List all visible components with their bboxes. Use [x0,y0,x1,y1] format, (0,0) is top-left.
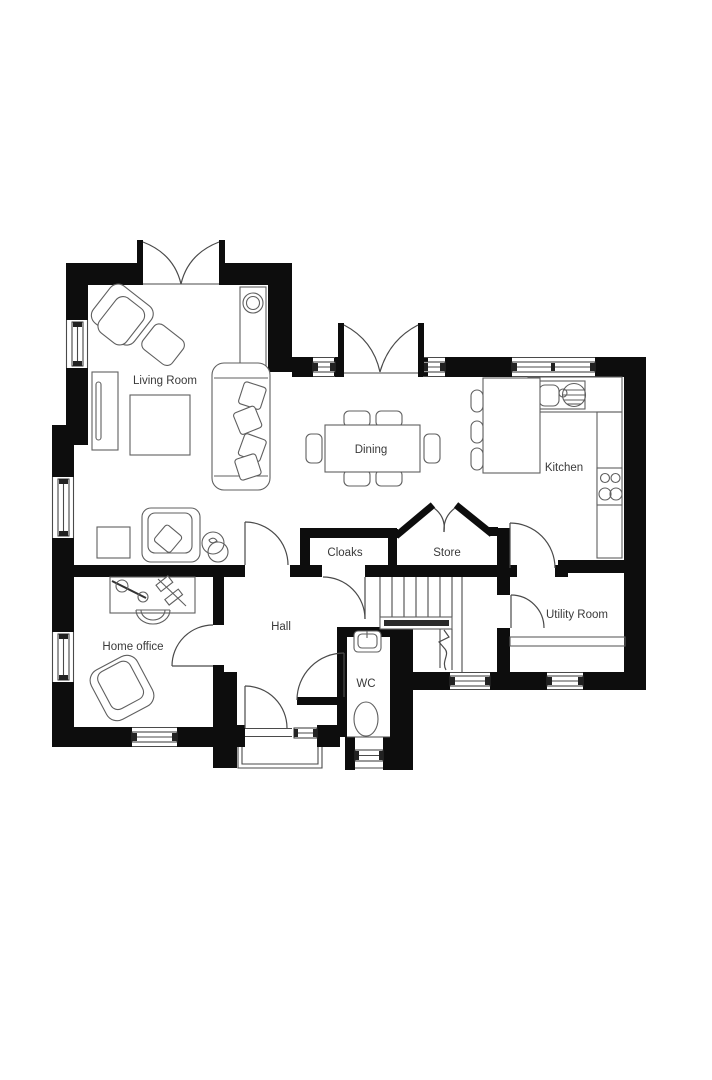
window-icon [67,320,88,368]
double-doors-icon [396,505,492,536]
hob-icon [597,468,622,505]
armchair-icon [142,508,200,562]
tv-unit-icon [92,372,118,450]
window-icon [53,477,74,538]
window-icon [53,632,74,682]
home-office-label: Home office [102,641,163,653]
store-label: Store [433,547,461,559]
coffee-table-icon [130,395,190,455]
hall-label: Hall [271,621,291,633]
front-door-icon [245,686,292,737]
window-icon [132,728,177,747]
armchair-icon [86,651,158,725]
basin-icon [354,631,381,652]
dining-label: Dining [355,444,388,456]
plant-table-icon [202,532,228,562]
door-icon [323,577,365,619]
sofa-icon [212,363,270,490]
door-icon [511,595,544,628]
utility-counter-icon [510,637,625,646]
window-icon [294,728,317,738]
wc-label: WC [356,678,375,690]
floor-plan-drawing: Living Room Dining Kitchen Cloaks Store … [0,0,712,1080]
window-icon [450,673,490,690]
desk-icon [110,576,195,613]
door-icon [172,625,213,666]
toilet-icon [354,702,378,736]
porch-icon [238,747,322,768]
footstool-icon [139,321,187,368]
living-room-label: Living Room [133,375,197,387]
cloaks-label: Cloaks [327,547,362,559]
door-icon [245,522,288,565]
door-icon [297,653,344,700]
island-breakfast-bar-icon [471,378,540,473]
window-icon [547,673,583,690]
side-table-icon [97,527,130,558]
floor-plan-canvas: Living Room Dining Kitchen Cloaks Store … [0,0,712,1080]
door-icon [510,523,555,568]
utility-room-label: Utility Room [546,609,608,621]
kitchen-label: Kitchen [545,462,583,474]
sink-icon [535,381,586,409]
window-icon [512,358,595,377]
french-doors-icon [338,323,424,373]
french-doors-icon [137,240,225,285]
cabinet-lamp-icon [240,287,266,368]
window-icon [313,358,335,377]
